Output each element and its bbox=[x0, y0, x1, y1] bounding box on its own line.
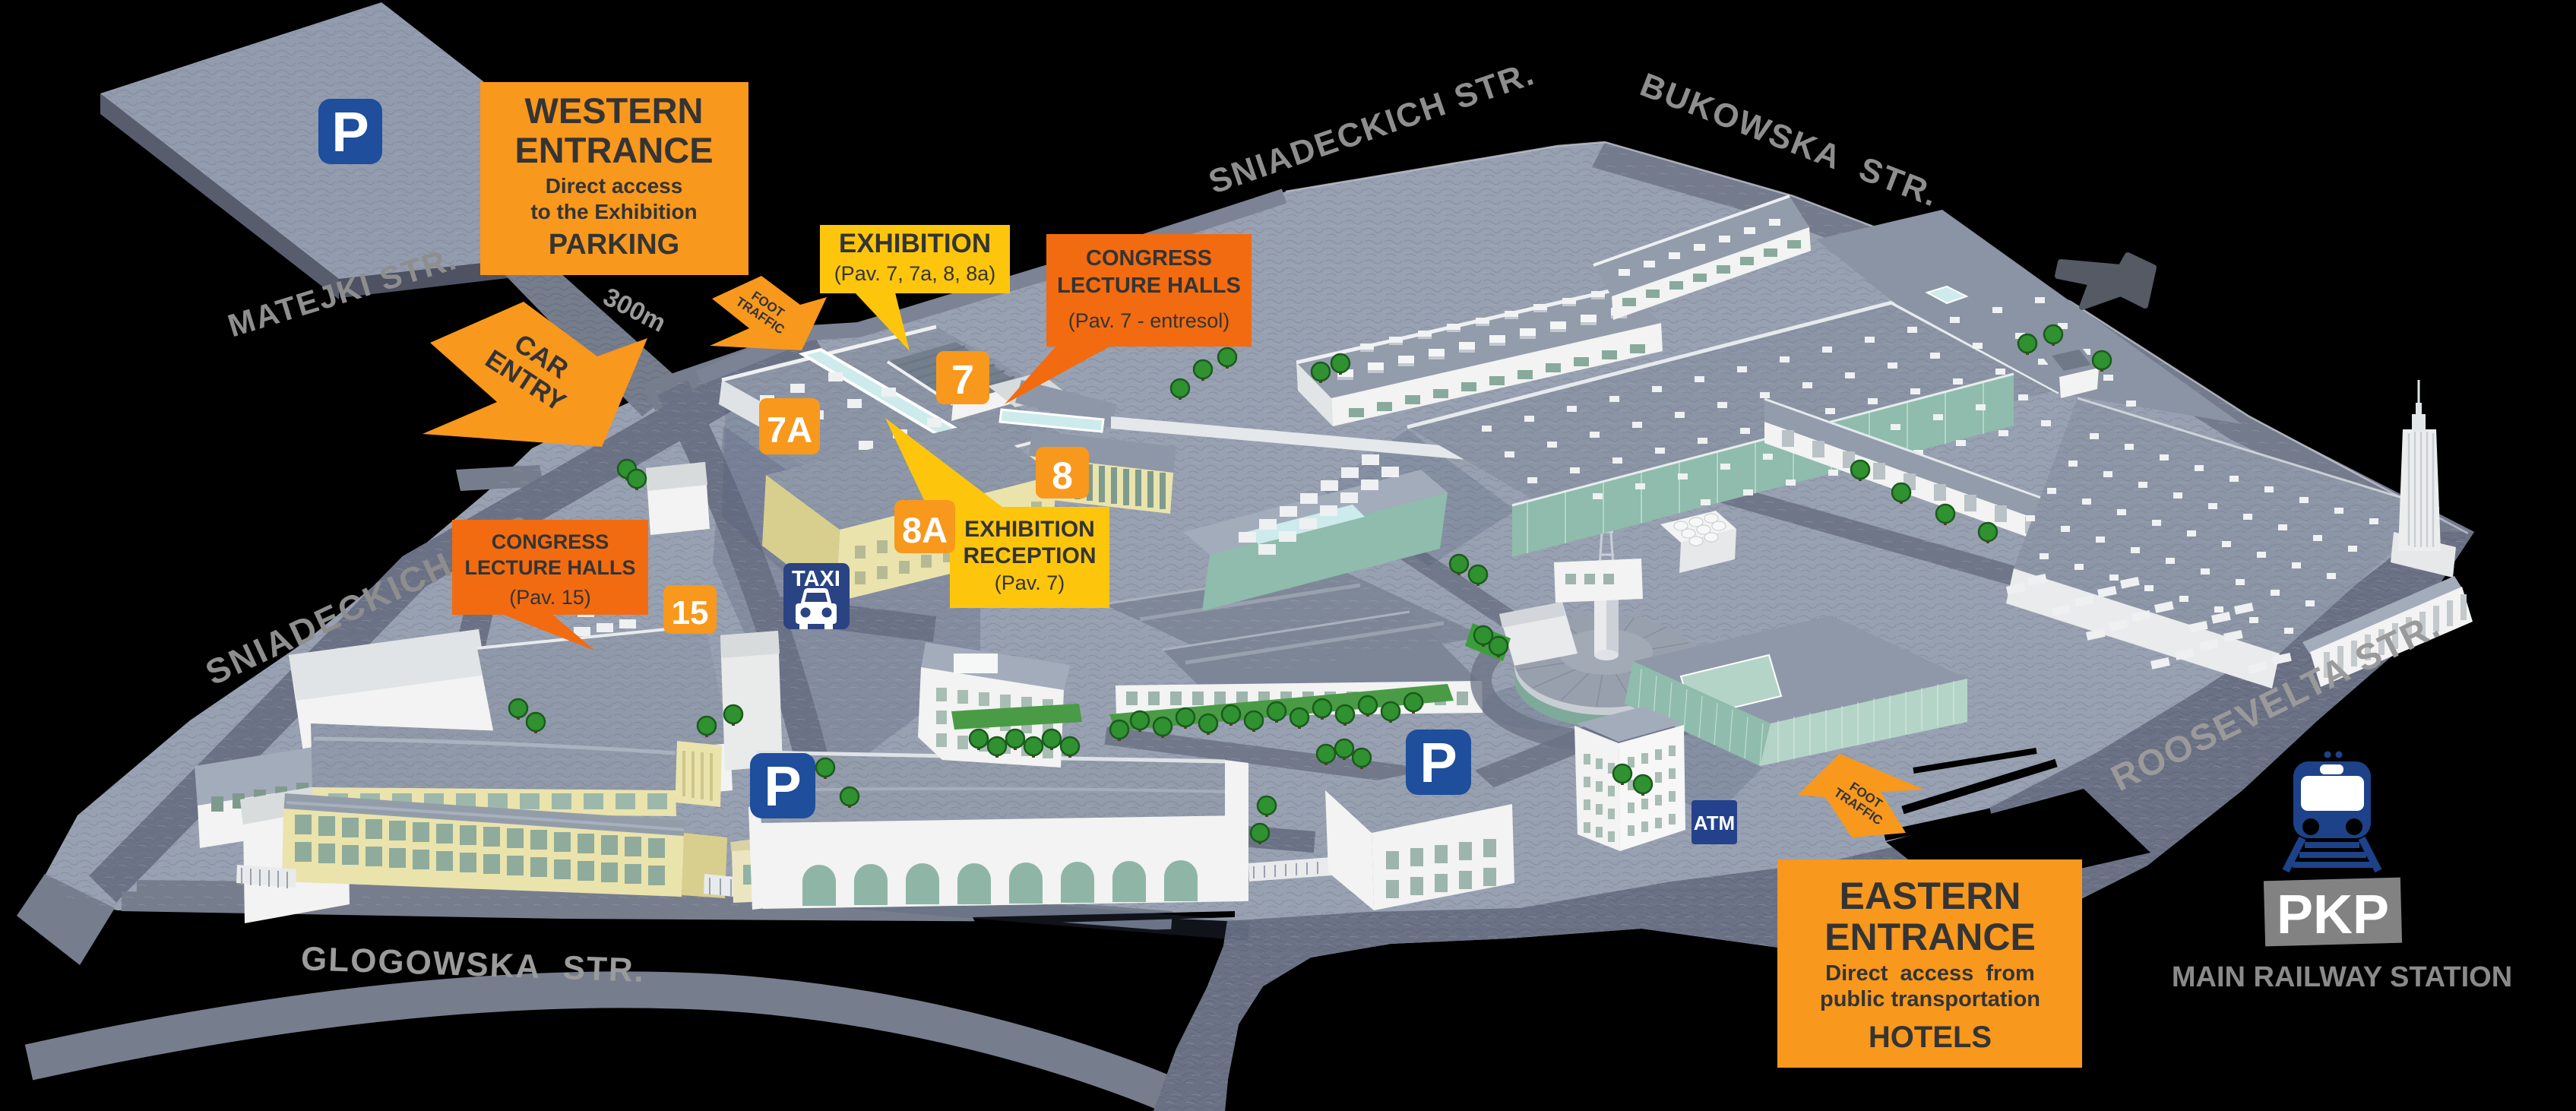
svg-text:CONGRESS: CONGRESS bbox=[492, 530, 609, 553]
svg-text:15: 15 bbox=[672, 594, 709, 631]
svg-text:8: 8 bbox=[1052, 454, 1073, 497]
svg-text:P: P bbox=[1419, 731, 1457, 794]
svg-text:PKP: PKP bbox=[2277, 885, 2389, 945]
svg-text:Direct access: Direct access bbox=[546, 174, 683, 198]
svg-text:(Pav. 7, 7a, 8, 8a): (Pav. 7, 7a, 8, 8a) bbox=[834, 262, 996, 285]
svg-text:EXHIBITION: EXHIBITION bbox=[839, 229, 991, 258]
svg-text:WESTERN: WESTERN bbox=[525, 90, 704, 131]
svg-text:public transportation: public transportation bbox=[1820, 987, 2040, 1011]
svg-text:ENTRANCE: ENTRANCE bbox=[514, 130, 713, 170]
svg-text:(Pav. 7 - entresol): (Pav. 7 - entresol) bbox=[1068, 309, 1230, 332]
svg-text:LECTURE HALLS: LECTURE HALLS bbox=[465, 556, 636, 579]
svg-text:ATM: ATM bbox=[1694, 812, 1735, 834]
svg-text:PARKING: PARKING bbox=[549, 229, 679, 261]
svg-text:P: P bbox=[331, 100, 369, 163]
svg-text:HOTELS: HOTELS bbox=[1869, 1021, 1992, 1054]
svg-text:(Pav. 7): (Pav. 7) bbox=[995, 571, 1065, 594]
svg-text:to the Exhibition: to the Exhibition bbox=[530, 200, 697, 223]
svg-text:Direct access from: Direct access from bbox=[1825, 961, 2035, 986]
svg-text:RECEPTION: RECEPTION bbox=[963, 543, 1096, 568]
svg-text:ENTRANCE: ENTRANCE bbox=[1824, 916, 2036, 958]
svg-text:LECTURE HALLS: LECTURE HALLS bbox=[1057, 274, 1241, 298]
svg-text:EXHIBITION: EXHIBITION bbox=[964, 517, 1095, 542]
svg-text:TAXI: TAXI bbox=[792, 567, 840, 591]
svg-text:8A: 8A bbox=[902, 510, 948, 550]
svg-text:(Pav. 15): (Pav. 15) bbox=[509, 586, 591, 609]
svg-text:EASTERN: EASTERN bbox=[1840, 875, 2021, 917]
svg-text:P: P bbox=[764, 755, 801, 818]
svg-text:MAIN RAILWAY STATION: MAIN RAILWAY STATION bbox=[2172, 961, 2512, 993]
svg-text:CONGRESS: CONGRESS bbox=[1086, 246, 1212, 271]
svg-text:7: 7 bbox=[951, 357, 974, 403]
svg-text:7A: 7A bbox=[767, 410, 812, 450]
